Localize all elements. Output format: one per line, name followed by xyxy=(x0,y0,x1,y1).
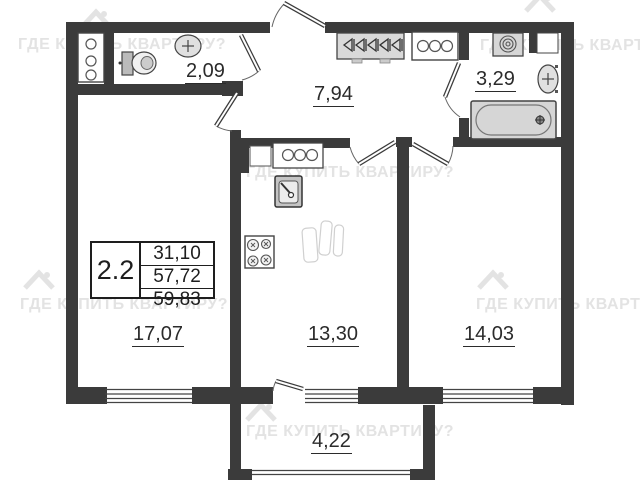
ventilation-shaft-icon xyxy=(78,33,104,82)
area-label-living-room: 17,07 xyxy=(132,324,184,347)
total-area-value: 59,83 xyxy=(141,288,213,311)
window-kitchen xyxy=(305,390,358,403)
unit-number: 2.2 xyxy=(92,243,141,297)
washing-machine-icon xyxy=(493,33,523,56)
floor-plan-drawing xyxy=(0,0,640,480)
area-label-wc: 2,09 xyxy=(185,61,226,84)
stove-icon xyxy=(245,236,274,268)
bathtub-icon xyxy=(471,101,556,139)
furniture-sketch xyxy=(302,221,344,263)
wc-sink-icon xyxy=(175,35,201,57)
living-area-value: 31,10 xyxy=(141,243,213,265)
area-label-balcony: 4,22 xyxy=(311,431,352,454)
wall-niche xyxy=(537,33,558,53)
toilet-icon xyxy=(119,52,157,75)
area-label-bathroom: 3,29 xyxy=(475,69,516,92)
apartment-info-table: 2.2 31,10 57,72 59,83 xyxy=(90,241,215,299)
kitchen-sink-icon xyxy=(275,176,302,207)
area-label-bedroom: 14,03 xyxy=(463,324,515,347)
balcony-glazing xyxy=(252,471,410,475)
area-label-hallway: 7,94 xyxy=(313,84,354,107)
wardrobe-icon xyxy=(337,33,404,63)
area-label-kitchen: 13,30 xyxy=(307,324,359,347)
hall-cabinet-icon xyxy=(412,32,458,60)
window-living-room xyxy=(105,390,192,403)
kitchen-counter xyxy=(250,143,323,168)
window-bedroom xyxy=(443,390,533,403)
floor-plan-page: ГДЕ КУПИТЬ КВАРТИРУ? ГДЕ КУПИТЬ КВАРТИРУ… xyxy=(0,0,640,480)
area-rows: 31,10 57,72 59,83 xyxy=(141,243,213,297)
area-value: 57,72 xyxy=(141,265,213,288)
bathroom-sink-icon xyxy=(538,65,558,93)
